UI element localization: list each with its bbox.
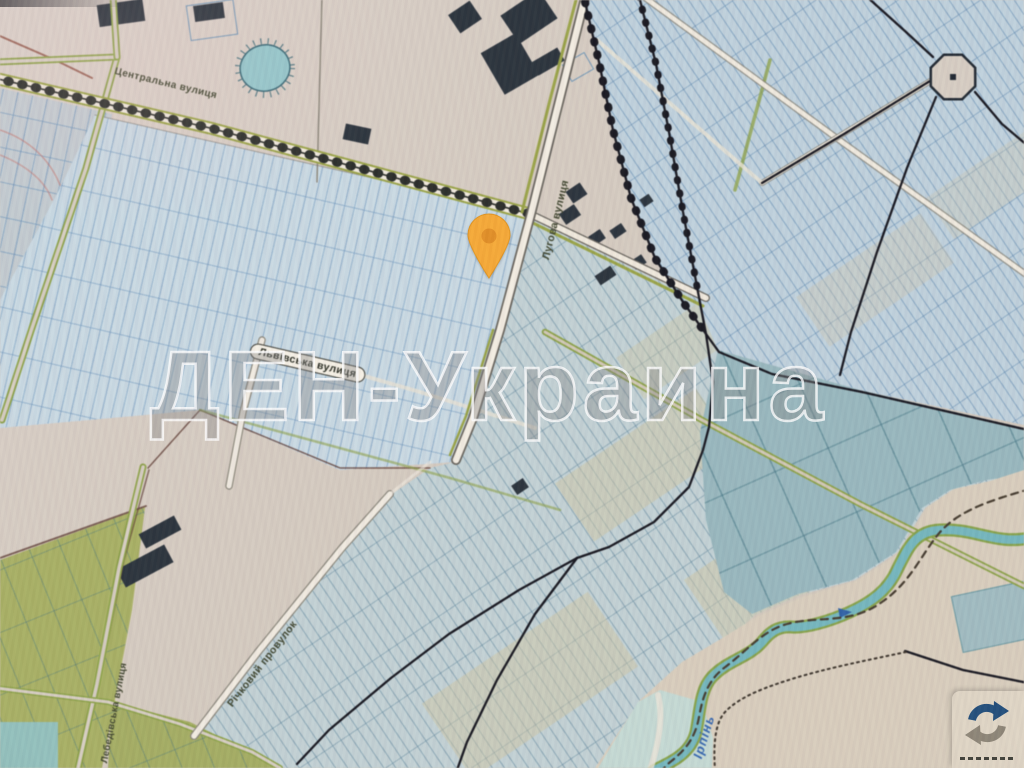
pond (235, 39, 295, 96)
logo-card[interactable] (952, 691, 1024, 768)
watermark-text: ДЕН-Украина (150, 330, 910, 443)
railway-road (0, 78, 706, 306)
logo-caption-illegible (960, 757, 1016, 760)
photo-edge-artifact (0, 0, 130, 7)
octagon-junction (931, 55, 975, 99)
refresh-icon[interactable] (963, 699, 1011, 747)
location-pin[interactable] (464, 212, 514, 280)
map-canvas[interactable]: Центральна вулиця Лугова вулиця Львівськ… (0, 0, 1024, 768)
pin-inner-dot (482, 229, 497, 244)
